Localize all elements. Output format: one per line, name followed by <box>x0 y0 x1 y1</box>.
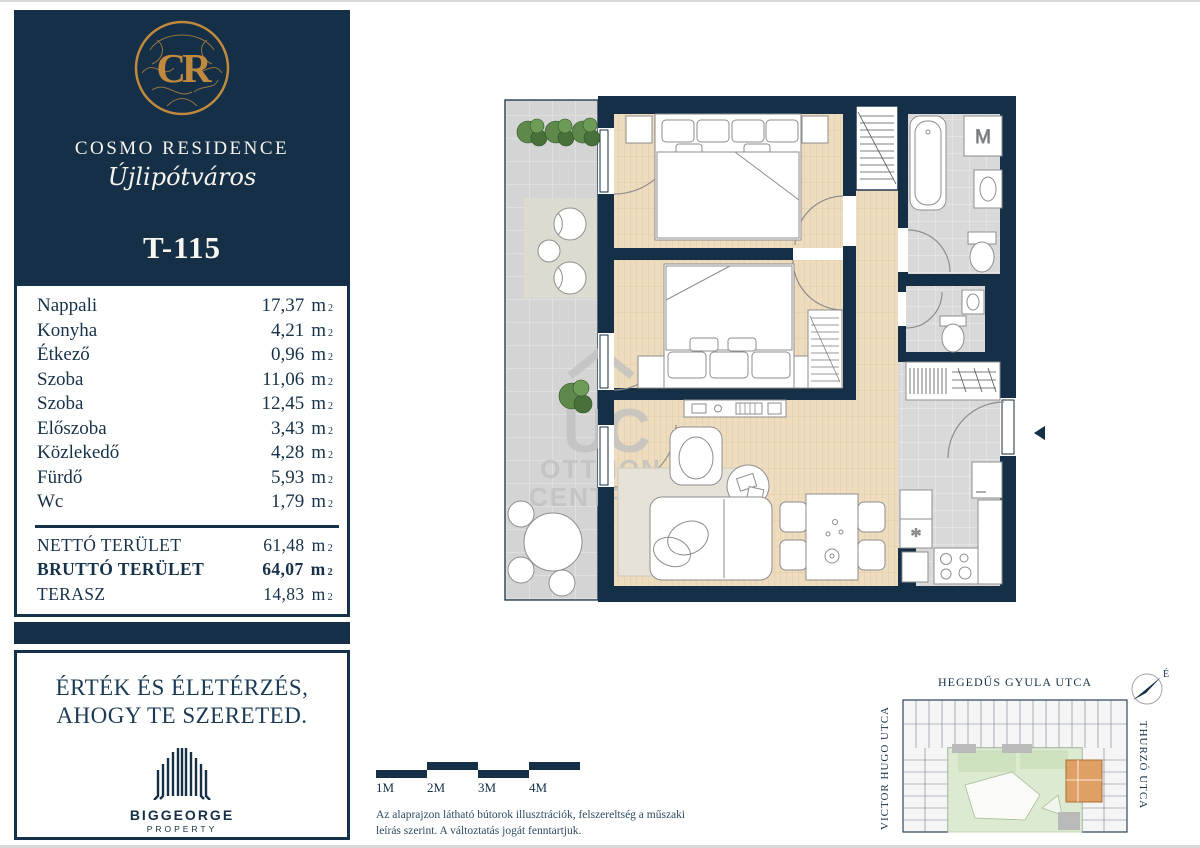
wc-toilet <box>942 324 964 352</box>
total-area: 14,83 <box>251 584 305 606</box>
top-edge-line <box>0 0 1200 2</box>
area-sup: 2 <box>328 298 333 320</box>
divider <box>35 525 339 528</box>
sink <box>974 170 1002 208</box>
total-row: BRUTTÓ TERÜLET64,07m2 <box>17 559 347 584</box>
terrace-chair <box>554 262 586 294</box>
area-sup: 2 <box>328 347 333 369</box>
area-sup: 2 <box>328 323 333 345</box>
armchair <box>670 427 722 485</box>
street-label-top: HEGEDŰS GYULA UTCA <box>938 675 1092 689</box>
kitchen-cabinet <box>900 490 932 519</box>
room-row: Wc1,79m2 <box>17 491 347 516</box>
terrace-small-table <box>538 240 560 262</box>
stove <box>934 548 978 584</box>
scale-label: 1M <box>376 780 395 795</box>
area-unit: m <box>312 584 326 606</box>
highlighted-unit <box>1066 760 1102 802</box>
slogan: ÉRTÉK ÉS ÉLETÉRZÉS, AHOGY TE SZERETED. <box>17 674 347 730</box>
terrace-chair <box>508 557 534 583</box>
room-row: Konyha4,21m2 <box>17 320 347 345</box>
room-area: 4,28 <box>250 442 304 464</box>
scale-label: 2M <box>427 780 446 795</box>
room-label: Konyha <box>37 320 250 342</box>
compass-label: É <box>1163 668 1169 680</box>
room-area: 1,79 <box>250 491 304 513</box>
developer-sub: PROPERTY <box>17 824 347 834</box>
room-row: Nappali17,37m2 <box>17 295 347 320</box>
room-row: Étkező0,96m2 <box>17 344 347 369</box>
terrace-chair <box>508 501 534 527</box>
room-list: Nappali17,37m2 Konyha4,21m2 Étkező0,96m2… <box>17 286 347 516</box>
fridge <box>972 462 1002 498</box>
area-unit: m <box>311 393 326 415</box>
entry-wardrobe-rack <box>906 362 1000 400</box>
terrace-table <box>524 513 582 571</box>
closet <box>856 106 898 190</box>
brand-name: COSMO RESIDENCE <box>14 138 350 160</box>
room-label: Fürdő <box>37 467 250 489</box>
total-row: NETTÓ TERÜLET61,48m2 <box>17 535 347 560</box>
room-row: Szoba12,45m2 <box>17 393 347 418</box>
scale-bar: 1M 2M 3M 4M <box>374 758 590 798</box>
kitchen-cabinet-low <box>902 552 928 582</box>
street-label-right: THURZÓ UTCA <box>1137 721 1149 809</box>
unit-id: T-115 <box>14 230 350 266</box>
logo-monogram: CR <box>156 45 212 91</box>
room-label: Étkező <box>37 344 250 366</box>
room-area: 17,37 <box>250 295 304 317</box>
room-area: 0,96 <box>250 344 304 366</box>
room-area: 3,43 <box>250 418 304 440</box>
site-map: HEGEDŰS GYULA UTCA VICTOR HUGO UTCA THUR… <box>870 662 1172 846</box>
kitchen-counter <box>978 500 1002 584</box>
brand-district: Újlipótváros <box>14 163 350 191</box>
bed-2 <box>638 264 808 388</box>
area-sup: 2 <box>328 372 333 394</box>
floorplan-drawing: UC OTTHON CENTRUM <box>500 90 1045 610</box>
area-unit: m <box>311 442 326 464</box>
total-area: 64,07 <box>250 559 304 581</box>
appliance-symbol: * <box>911 523 922 548</box>
totals-list: NETTÓ TERÜLET61,48m2 BRUTTÓ TERÜLET64,07… <box>17 535 347 609</box>
area-unit: m <box>311 369 326 391</box>
slogan-box: ÉRTÉK ÉS ÉLETÉRZÉS, AHOGY TE SZERETED. <box>14 650 350 840</box>
biggeorge-icon <box>151 748 213 800</box>
slogan-line1: ÉRTÉK ÉS ÉLETÉRZÉS, <box>17 674 347 702</box>
room-label: Szoba <box>37 369 250 391</box>
room-area: 12,45 <box>250 393 304 415</box>
developer-name: BIGGEORGE <box>17 807 347 823</box>
compass-icon: É <box>1132 668 1169 704</box>
terrace-chair <box>549 570 575 596</box>
scale-label: 4M <box>529 780 548 795</box>
total-row: TERASZ14,83m2 <box>17 584 347 609</box>
room-label: Nappali <box>37 295 250 317</box>
total-label: TERASZ <box>37 584 251 606</box>
room-row: Szoba11,06m2 <box>17 369 347 394</box>
total-label: NETTÓ TERÜLET <box>37 535 251 557</box>
room-area: 4,21 <box>250 320 304 342</box>
washing-machine-label: M <box>975 127 991 148</box>
sideboard <box>684 400 786 417</box>
bed-1 <box>626 114 828 240</box>
area-sup: 2 <box>328 538 333 560</box>
room-row: Közlekedő4,28m2 <box>17 442 347 467</box>
area-table: Nappali17,37m2 Konyha4,21m2 Étkező0,96m2… <box>14 283 350 617</box>
room-label: Szoba <box>37 393 250 415</box>
area-unit: m <box>311 559 326 581</box>
area-unit: m <box>311 344 326 366</box>
area-sup: 2 <box>328 445 333 467</box>
disclaimer-text: Az alaprajzon látható bútorok illusztrác… <box>376 808 708 839</box>
toilet <box>970 242 994 272</box>
area-sup: 2 <box>328 587 333 609</box>
slogan-line2: AHOGY TE SZERETED. <box>17 702 347 730</box>
street-label-left: VICTOR HUGO UTCA <box>879 706 891 830</box>
cosmo-residence-logo-icon: CR <box>132 18 232 118</box>
area-sup: 2 <box>328 470 333 492</box>
room-label: Közlekedő <box>37 442 250 464</box>
separator-band <box>14 622 350 644</box>
room-row: Fürdő5,93m2 <box>17 467 347 492</box>
terrace-chair <box>554 208 586 240</box>
area-sup: 2 <box>328 562 333 584</box>
total-area: 61,48 <box>251 535 305 557</box>
brand-panel: CR COSMO RESIDENCE Újlipótváros T-115 <box>14 10 350 283</box>
area-unit: m <box>312 535 326 557</box>
floorplan-sheet: CR COSMO RESIDENCE Újlipótváros T-115 Na… <box>0 0 1200 848</box>
developer-logo: BIGGEORGE PROPERTY <box>17 748 347 834</box>
room-area: 5,93 <box>250 467 304 489</box>
total-label: BRUTTÓ TERÜLET <box>37 559 250 581</box>
area-unit: m <box>311 491 326 513</box>
area-sup: 2 <box>328 494 333 516</box>
entrance-arrow-icon <box>1034 418 1045 448</box>
wardrobe <box>808 310 842 388</box>
courtyard <box>948 744 1082 832</box>
room-label: Előszoba <box>37 418 250 440</box>
room-area: 11,06 <box>250 369 304 391</box>
area-unit: m <box>311 295 326 317</box>
area-unit: m <box>311 467 326 489</box>
area-unit: m <box>311 320 326 342</box>
area-sup: 2 <box>328 396 333 418</box>
room-row: Előszoba3,43m2 <box>17 418 347 443</box>
area-sup: 2 <box>328 421 333 443</box>
room-label: Wc <box>37 491 250 513</box>
scale-label: 3M <box>478 780 497 795</box>
area-unit: m <box>311 418 326 440</box>
